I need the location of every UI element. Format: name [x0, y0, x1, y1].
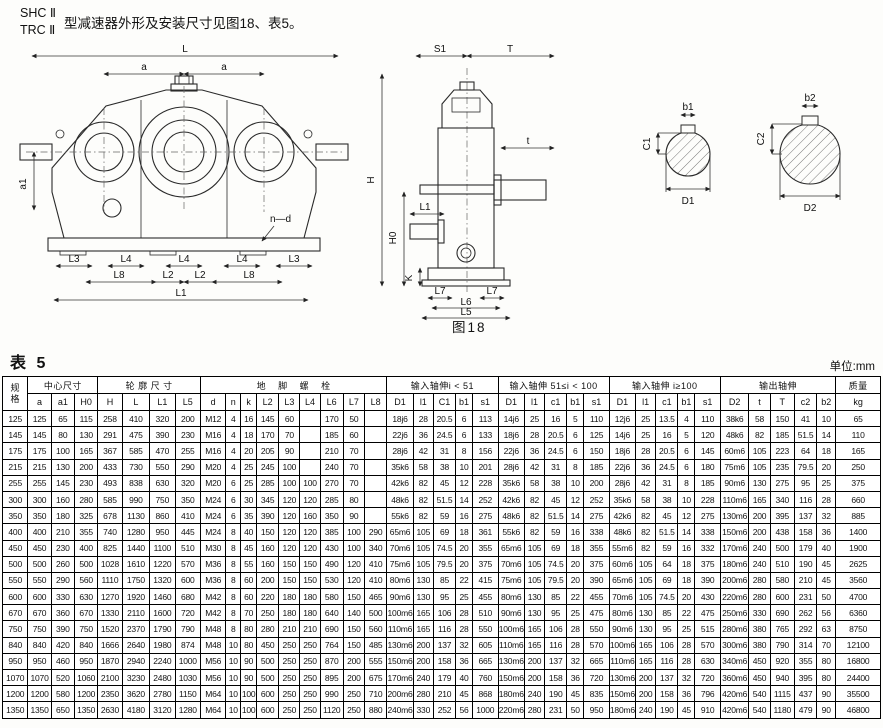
table-cell: 4700	[836, 589, 881, 605]
table-cell: 710	[365, 686, 387, 702]
table-cell: 240	[749, 556, 770, 572]
table-cell: 1460	[150, 589, 175, 605]
table-cell: 200	[636, 670, 656, 686]
table-cell: 640	[320, 605, 343, 621]
dim-label-side-L1: L1	[419, 202, 431, 213]
table-cell: 179	[433, 670, 455, 686]
table-cell: 580	[51, 686, 74, 702]
table-cell: 8750	[836, 621, 881, 637]
table-cell: 920	[770, 653, 794, 669]
table-cell: 220m6	[498, 702, 524, 718]
table-cell: 910	[695, 702, 720, 718]
table-row: 1070107052010602100323024801030M56109050…	[3, 670, 881, 686]
dim-label-a1: a1	[18, 178, 29, 190]
table-cell: 390	[150, 427, 175, 443]
table-cell: 250	[279, 670, 300, 686]
table-cell: 285	[257, 475, 279, 491]
table-cell: 355	[584, 540, 609, 556]
table-cell: 80	[241, 637, 257, 653]
table-cell: 70m6	[609, 589, 635, 605]
table-cell: 2350	[98, 686, 122, 702]
table-cell: 460	[51, 653, 74, 669]
table-cell: 8	[678, 475, 695, 491]
table-cell: 292	[794, 621, 816, 637]
table-cell: M24	[200, 491, 225, 507]
table-cell: 200m6	[720, 572, 749, 588]
table-cell: 28	[413, 411, 433, 427]
table-cell: 42k6	[609, 508, 635, 524]
table-cell: 280	[749, 589, 770, 605]
table-cell: 175	[3, 443, 28, 459]
dim-label-L: L	[182, 44, 188, 55]
table-cell: 120	[279, 524, 300, 540]
table-cell: 70	[343, 459, 364, 475]
table-cell: M56	[200, 670, 225, 686]
table-cell: 385	[320, 524, 343, 540]
table-cell: 28j6	[498, 459, 524, 475]
table-cell: 65m6	[498, 540, 524, 556]
table-cell: 58	[636, 491, 656, 507]
table-cell: 10	[226, 686, 241, 702]
table-row: 1350135065013502630418031201280M64101006…	[3, 702, 881, 718]
table-row: 3503501803256781130860410M24635390120160…	[3, 508, 881, 524]
table-cell: 45	[567, 686, 584, 702]
table-cell: 100	[343, 540, 364, 556]
table-cell: 156	[473, 443, 498, 459]
table-cell: 560	[365, 621, 387, 637]
table-cell: 60	[241, 589, 257, 605]
table-cell: 36	[817, 524, 836, 540]
table-cell: 1330	[98, 605, 122, 621]
table-cell: 82	[636, 540, 656, 556]
table-cell: 130m6	[609, 670, 635, 686]
table-cell: 190	[794, 556, 816, 572]
table-cell	[300, 411, 320, 427]
table-cell: 36	[567, 670, 584, 686]
table-cell: 38	[656, 491, 678, 507]
table-cell: 185	[584, 459, 609, 475]
table-cell: 1000	[175, 653, 200, 669]
dim-label-t: t	[527, 136, 530, 147]
table-cell: 8	[226, 572, 241, 588]
table-cell	[300, 459, 320, 475]
table-cell: 465	[365, 589, 387, 605]
table-cell: 8	[567, 459, 584, 475]
table-cell: 840	[28, 637, 51, 653]
table-cell: 223	[770, 443, 794, 459]
table-cell: 250	[300, 653, 320, 669]
table-cell: 990	[320, 686, 343, 702]
column-group-header: 质量	[836, 377, 881, 394]
table-cell: 158	[433, 653, 455, 669]
table-cell: 32	[817, 508, 836, 524]
dim-label-L2-left: L2	[162, 270, 174, 281]
dim-label-T: T	[507, 44, 513, 55]
table-cell: 45	[545, 491, 567, 507]
table-cell: 660	[836, 491, 881, 507]
table-cell: 1790	[150, 621, 175, 637]
table-cell: 605	[473, 637, 498, 653]
table-cell: 25	[636, 411, 656, 427]
table-cell: 280m6	[720, 621, 749, 637]
figure-caption: 图18	[452, 316, 487, 336]
table-cell: 116	[656, 653, 678, 669]
table-cell: 28j6	[387, 443, 413, 459]
column-group-header: 中心尺寸	[28, 377, 98, 394]
dim-label-L4-1: L4	[120, 254, 132, 265]
table-cell: 600	[3, 589, 28, 605]
table-cell: 665	[473, 653, 498, 669]
table-cell	[365, 491, 387, 507]
table-cell: 120	[343, 572, 364, 588]
table-cell: 510	[770, 556, 794, 572]
table-cell: 82	[413, 508, 433, 524]
table-cell: 42	[524, 459, 544, 475]
table-cell: 670	[74, 605, 97, 621]
table-cell: 470	[150, 443, 175, 459]
table-cell: 185	[320, 427, 343, 443]
table-cell: 215	[3, 459, 28, 475]
table-cell: 8	[226, 524, 241, 540]
table-cell: M48	[200, 621, 225, 637]
table-cell: 45	[656, 508, 678, 524]
table-cell	[300, 427, 320, 443]
table-cell: 895	[320, 670, 343, 686]
table-cell: 720	[584, 670, 609, 686]
table-cell: 18	[817, 443, 836, 459]
table-cell: 360	[51, 605, 74, 621]
table-cell: 231	[794, 589, 816, 605]
table-cell: 285	[320, 491, 343, 507]
table-cell: 165	[836, 443, 881, 459]
table-cell: 1666	[98, 637, 122, 653]
table-cell: 455	[473, 589, 498, 605]
table-cell: 1980	[150, 637, 175, 653]
table-cell: 20	[817, 459, 836, 475]
table-cell: 870	[320, 653, 343, 669]
table-cell: 106	[433, 605, 455, 621]
table-cell: 80	[817, 653, 836, 669]
table-cell: M30	[200, 540, 225, 556]
table-cell: 6	[567, 427, 584, 443]
table-cell	[365, 427, 387, 443]
table-cell: 106	[545, 621, 567, 637]
column-header: b1	[678, 394, 695, 411]
table-cell: 56	[456, 702, 473, 718]
table-cell	[365, 475, 387, 491]
table-cell: 1028	[98, 556, 122, 572]
table-cell: 493	[98, 475, 122, 491]
table-cell: 250	[279, 686, 300, 702]
column-group-header: 输入轴伸 i≥100	[609, 377, 720, 394]
table-cell: 2940	[122, 653, 150, 669]
table-cell: 100m6	[609, 637, 635, 653]
table-cell: 90	[817, 686, 836, 702]
table-cell: 250	[300, 670, 320, 686]
table-cell: 450	[749, 670, 770, 686]
table-cell: M48	[200, 637, 225, 653]
table-cell: 500	[770, 540, 794, 556]
table-cell: 1440	[122, 540, 150, 556]
table-cell: 180	[300, 605, 320, 621]
table-cell: 150	[257, 524, 279, 540]
table-cell: 18	[678, 572, 695, 588]
table-cell: 250	[343, 686, 364, 702]
table-cell: 790	[175, 621, 200, 637]
table-cell: 40	[817, 540, 836, 556]
table-cell: 760	[473, 670, 498, 686]
table-cell: 70	[343, 475, 364, 491]
table-cell: 540	[749, 702, 770, 718]
table-cell: 475	[695, 605, 720, 621]
dim-label-a-left: a	[141, 62, 147, 73]
table-cell: 200m6	[387, 686, 413, 702]
table-cell: 24400	[836, 670, 881, 686]
table-cell: 165	[636, 653, 656, 669]
table-row: 750750390750152023701790790M488802802102…	[3, 621, 881, 637]
table-cell: 170m6	[387, 670, 413, 686]
table-cell: 200	[524, 670, 544, 686]
table-cell: 150	[343, 621, 364, 637]
table-cell: 120	[300, 524, 320, 540]
table-cell: 790	[770, 637, 794, 653]
table-cell: 750	[28, 621, 51, 637]
table-cell: 190	[656, 702, 678, 718]
table-cell: 45	[678, 702, 695, 718]
table-cell: 840	[74, 637, 97, 653]
table-cell: 200	[584, 475, 609, 491]
table-cell: 550	[3, 572, 28, 588]
table-cell: 20.5	[433, 411, 455, 427]
table-cell: M20	[200, 475, 225, 491]
table-cell: 1750	[122, 572, 150, 588]
table-cell: 165	[524, 637, 544, 653]
table-cell: 55m6	[609, 540, 635, 556]
table-cell: 79.5	[433, 556, 455, 572]
table-cell: 438	[770, 524, 794, 540]
table-cell: 115	[74, 411, 97, 427]
table-cell: 1350	[28, 702, 51, 718]
table-cell: 430	[320, 540, 343, 556]
table-cell: 60	[279, 411, 300, 427]
table-cell: 290	[175, 459, 200, 475]
table-cell: 180	[695, 459, 720, 475]
table-cell: 940	[770, 670, 794, 686]
table-cell: M16	[200, 427, 225, 443]
table-cell: 4	[226, 427, 241, 443]
table-cell: 6	[678, 459, 695, 475]
input-shaft-section-drawing: b1 C1 D1	[628, 94, 743, 212]
column-header: D1	[609, 394, 635, 411]
table-cell: 90	[343, 508, 364, 524]
table-cell: 82	[749, 427, 770, 443]
table-cell: 51.5	[656, 524, 678, 540]
table-cell: 230	[175, 427, 200, 443]
table-cell: 80	[51, 427, 74, 443]
table-cell: 25	[567, 605, 584, 621]
table-cell: 18	[241, 427, 257, 443]
column-header: l1	[636, 394, 656, 411]
table-cell: 2480	[150, 670, 175, 686]
table-cell: 510	[473, 605, 498, 621]
table-cell: 6	[678, 443, 695, 459]
table-cell: 200	[413, 653, 433, 669]
table-cell: 825	[98, 540, 122, 556]
table-cell: 55k6	[498, 524, 524, 540]
table-cell: 680	[175, 589, 200, 605]
table-cell: 600	[175, 572, 200, 588]
table-cell: 250	[300, 637, 320, 653]
table-cell: 415	[473, 572, 498, 588]
column-header: k	[241, 394, 257, 411]
table-cell: 185	[695, 475, 720, 491]
table-cell: 250	[836, 459, 881, 475]
column-group-header: 输出轴伸	[720, 377, 835, 394]
column-header: s1	[473, 394, 498, 411]
table-cell: 22j6	[498, 443, 524, 459]
dim-label-L4-2: L4	[178, 254, 190, 265]
table-cell: 150	[300, 556, 320, 572]
table-cell: 1100	[150, 540, 175, 556]
table-cell: 105	[413, 540, 433, 556]
table-row: 4004002103557401280950445M24840150120120…	[3, 524, 881, 540]
table-cell: 2100	[98, 670, 122, 686]
table-cell: 69	[545, 540, 567, 556]
table-cell: 332	[695, 540, 720, 556]
table-cell: 75m6	[498, 572, 524, 588]
table-cell: 100	[300, 475, 320, 491]
table-cell: 85	[545, 589, 567, 605]
table-cell: 255	[175, 443, 200, 459]
table-cell: 125	[3, 411, 28, 427]
table-cell: 479	[794, 702, 816, 718]
table-cell: 340	[365, 540, 387, 556]
table-cell: 45	[433, 475, 455, 491]
table-cell: 35500	[836, 686, 881, 702]
table-cell: 165	[413, 605, 433, 621]
table-cell: 24.5	[656, 459, 678, 475]
table-cell: 16	[241, 411, 257, 427]
table-cell: 280	[413, 686, 433, 702]
table-cell: 150	[343, 589, 364, 605]
table-cell: 14j6	[498, 411, 524, 427]
table-cell: 100	[241, 702, 257, 718]
table-cell: 10	[678, 491, 695, 507]
table-cell: 38	[433, 459, 455, 475]
table-cell: 690	[320, 621, 343, 637]
table-cell: 420	[51, 637, 74, 653]
table-cell: 18j6	[387, 411, 413, 427]
table-cell: 20	[456, 540, 473, 556]
table-cell: 240	[636, 702, 656, 718]
table-cell: 48k6	[720, 427, 749, 443]
table-cell: 720	[695, 670, 720, 686]
table-cell: 140	[343, 605, 364, 621]
table-cell: 137	[794, 508, 816, 524]
column-header: b1	[456, 394, 473, 411]
table-cell: M42	[200, 589, 225, 605]
table-cell: 437	[794, 686, 816, 702]
table-row: 840840420840166626401980874M481080450250…	[3, 637, 881, 653]
table-cell: 36	[456, 653, 473, 669]
table-cell: 150m6	[609, 686, 635, 702]
table-cell: 490	[320, 556, 343, 572]
table-cell: 160	[300, 508, 320, 524]
table-cell: 165	[636, 637, 656, 653]
table-cell: 40	[456, 670, 473, 686]
table-cell: 16800	[836, 653, 881, 669]
table-cell: 690	[770, 605, 794, 621]
table-cell: 170m6	[720, 540, 749, 556]
table-cell: 82	[636, 524, 656, 540]
table-cell: 375	[836, 475, 881, 491]
column-header: s1	[584, 394, 609, 411]
table-cell: 82	[524, 524, 544, 540]
table-cell: 835	[584, 686, 609, 702]
table-cell: 82	[524, 508, 544, 524]
table-cell: 255	[28, 475, 51, 491]
table-cell: 51.5	[794, 427, 816, 443]
table-cell: 125	[584, 427, 609, 443]
table-cell: 59	[433, 508, 455, 524]
table-cell: 100	[279, 459, 300, 475]
table-cell: 25	[636, 427, 656, 443]
column-header: l1	[413, 394, 433, 411]
column-header: a1	[51, 394, 74, 411]
table-cell: 90	[241, 670, 257, 686]
table-cell: 150m6	[498, 670, 524, 686]
model-shc: SHC Ⅱ	[20, 5, 56, 22]
table-cell: 51.5	[545, 508, 567, 524]
table-cell: 50	[343, 411, 364, 427]
table-cell: 69	[656, 572, 678, 588]
table-cell: 252	[433, 702, 455, 718]
table-cell: 1070	[3, 670, 28, 686]
table-cell: 38k6	[720, 411, 749, 427]
table-cell: 58	[749, 411, 770, 427]
table-cell: 125	[28, 411, 51, 427]
table-cell: 60	[343, 427, 364, 443]
table-cell: 630	[150, 475, 175, 491]
table-cell: 20	[678, 589, 695, 605]
table-cell: 258	[98, 411, 122, 427]
table-cell: 105	[524, 540, 544, 556]
table-cell: 110m6	[387, 621, 413, 637]
table-cell: 500	[28, 556, 51, 572]
dim-label-L1: L1	[175, 288, 187, 299]
table-cell: 10	[226, 637, 241, 653]
table-cell: 2110	[122, 605, 150, 621]
table-cell: 12	[678, 508, 695, 524]
table-cell: 320	[150, 411, 175, 427]
table-cell: 45	[241, 540, 257, 556]
table-cell: 180m6	[609, 702, 635, 718]
table-cell: 6360	[836, 605, 881, 621]
table-cell: 8	[226, 621, 241, 637]
table-cell: 200	[74, 459, 97, 475]
table-cell: 450	[28, 540, 51, 556]
table-cell: 100m6	[387, 605, 413, 621]
table-cell: 250	[279, 637, 300, 653]
table-cell: 32	[456, 637, 473, 653]
table-cell: 300	[3, 491, 28, 507]
dim-label-L7-left: L7	[434, 286, 446, 297]
table-cell: 515	[695, 621, 720, 637]
table-cell: 22j6	[609, 459, 635, 475]
table-cell: 51.5	[433, 491, 455, 507]
dim-label-n-d: n—d	[270, 214, 291, 225]
table-cell: 275	[473, 508, 498, 524]
